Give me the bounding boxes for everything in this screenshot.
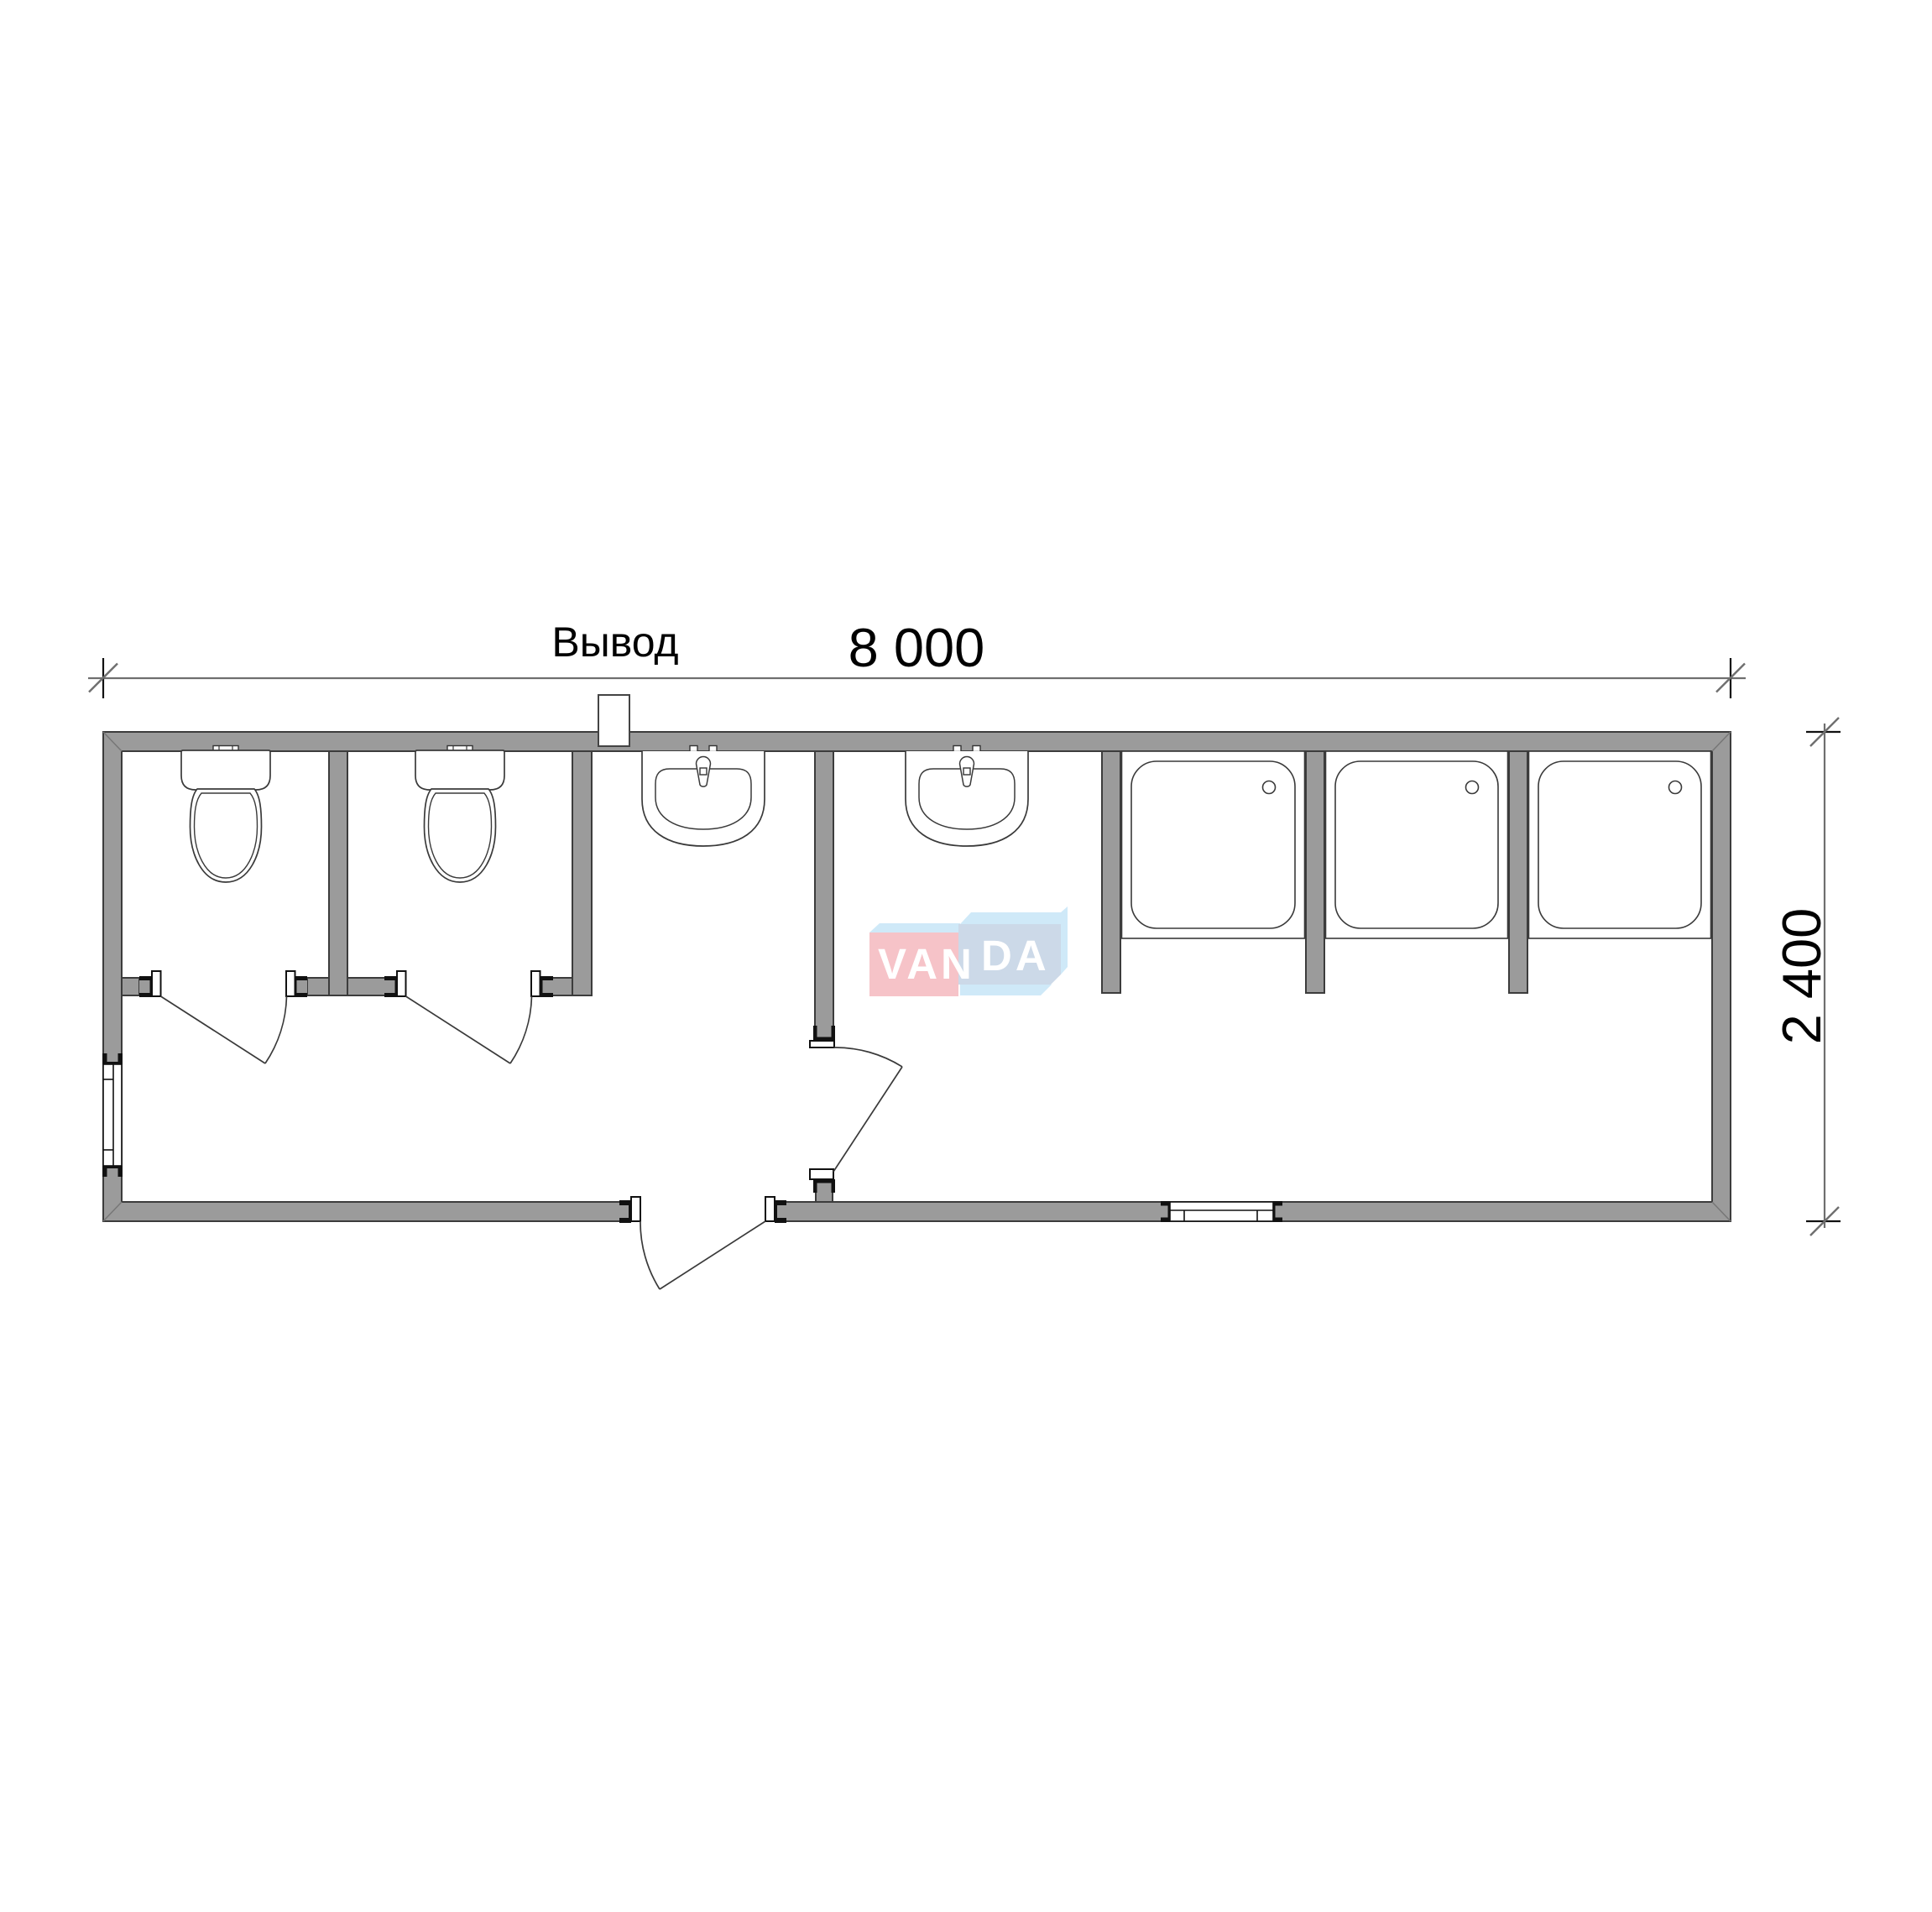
- svg-text:2 400: 2 400: [1771, 908, 1832, 1045]
- svg-text:DA: DA: [981, 932, 1050, 980]
- svg-text:Вывод: Вывод: [551, 619, 678, 666]
- svg-text:VAN: VAN: [878, 940, 975, 988]
- svg-text:8 000: 8 000: [849, 617, 985, 678]
